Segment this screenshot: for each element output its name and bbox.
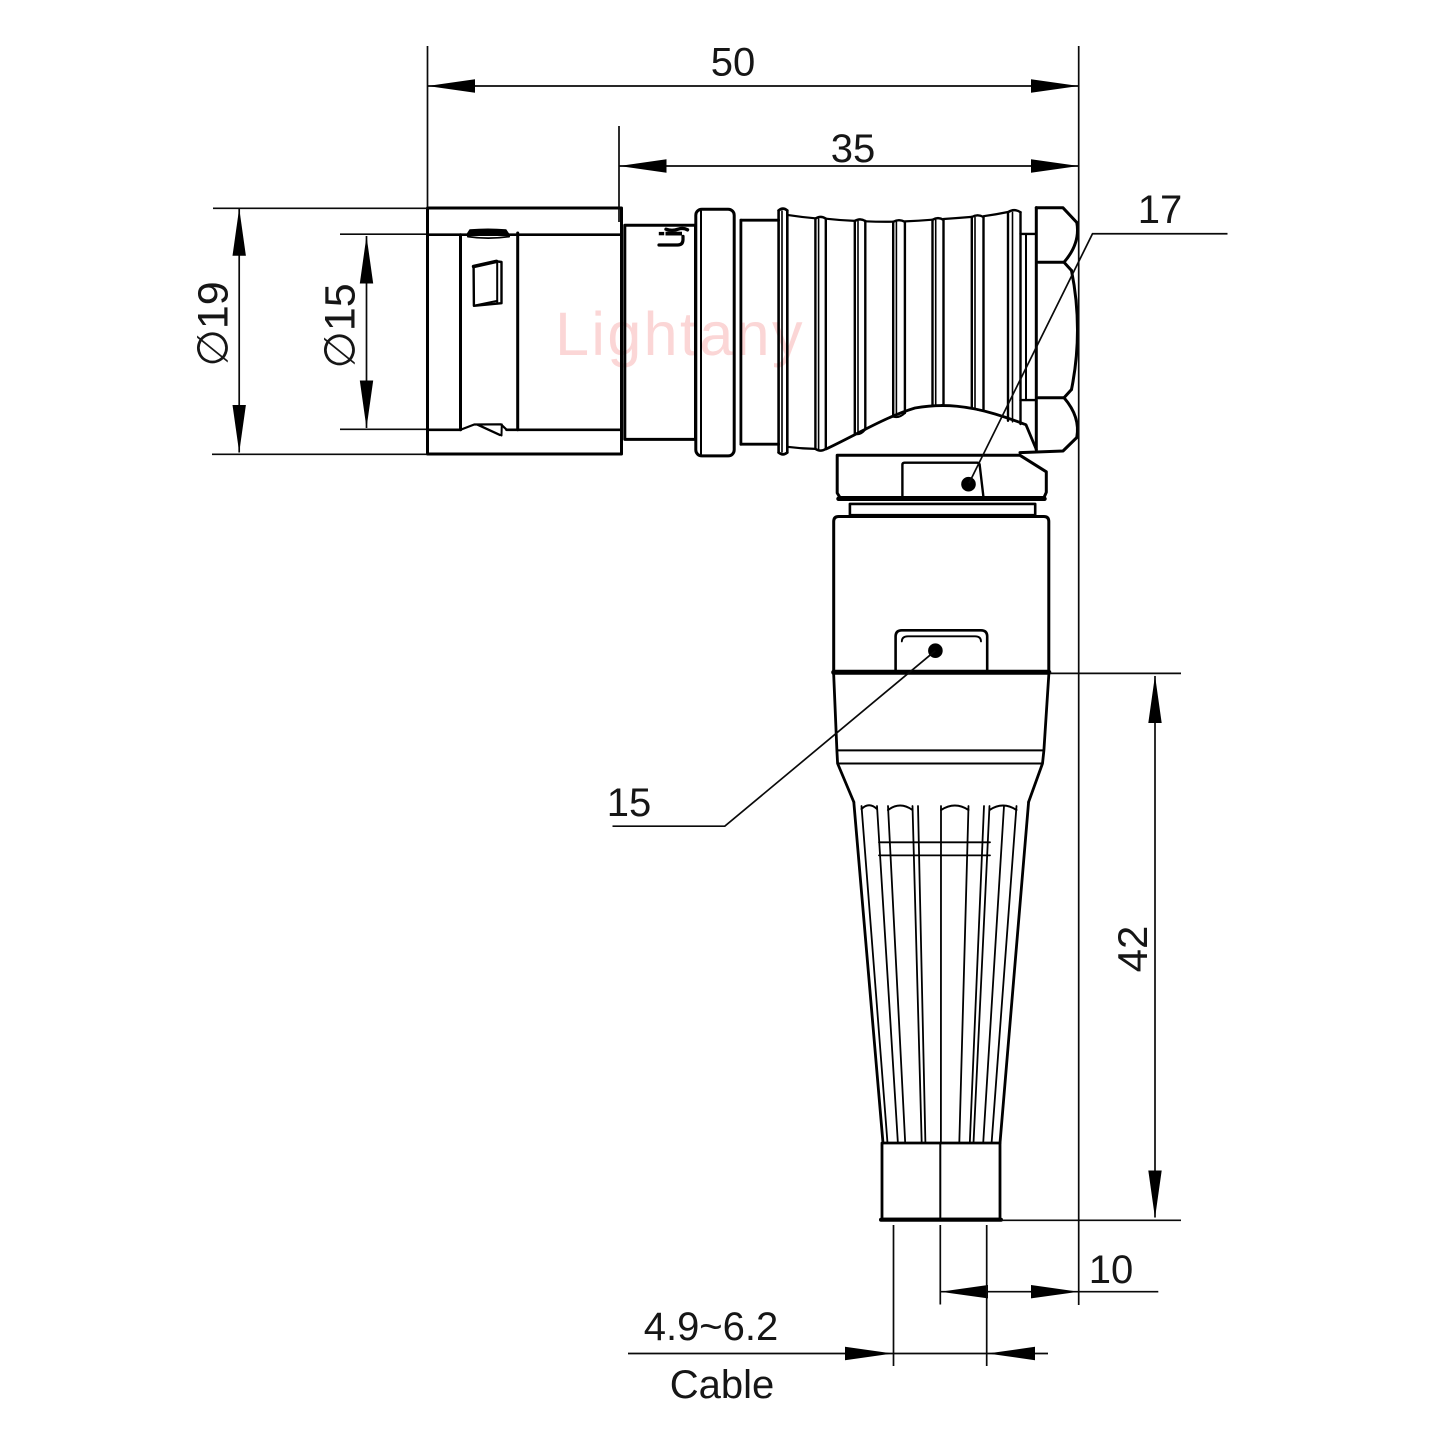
svg-text:4.9~6.2: 4.9~6.2 — [644, 1305, 779, 1349]
svg-text:50: 50 — [711, 41, 756, 85]
svg-text:∅19: ∅19 — [190, 281, 238, 366]
svg-text:Lightany: Lightany — [555, 300, 805, 368]
svg-text:35: 35 — [831, 127, 876, 171]
svg-text:15: 15 — [607, 781, 652, 825]
svg-text:∅15: ∅15 — [317, 283, 365, 368]
svg-text:10: 10 — [1089, 1248, 1134, 1292]
svg-text:Cable: Cable — [670, 1363, 775, 1407]
svg-text:42: 42 — [1109, 926, 1156, 973]
svg-text:17: 17 — [1138, 188, 1183, 232]
